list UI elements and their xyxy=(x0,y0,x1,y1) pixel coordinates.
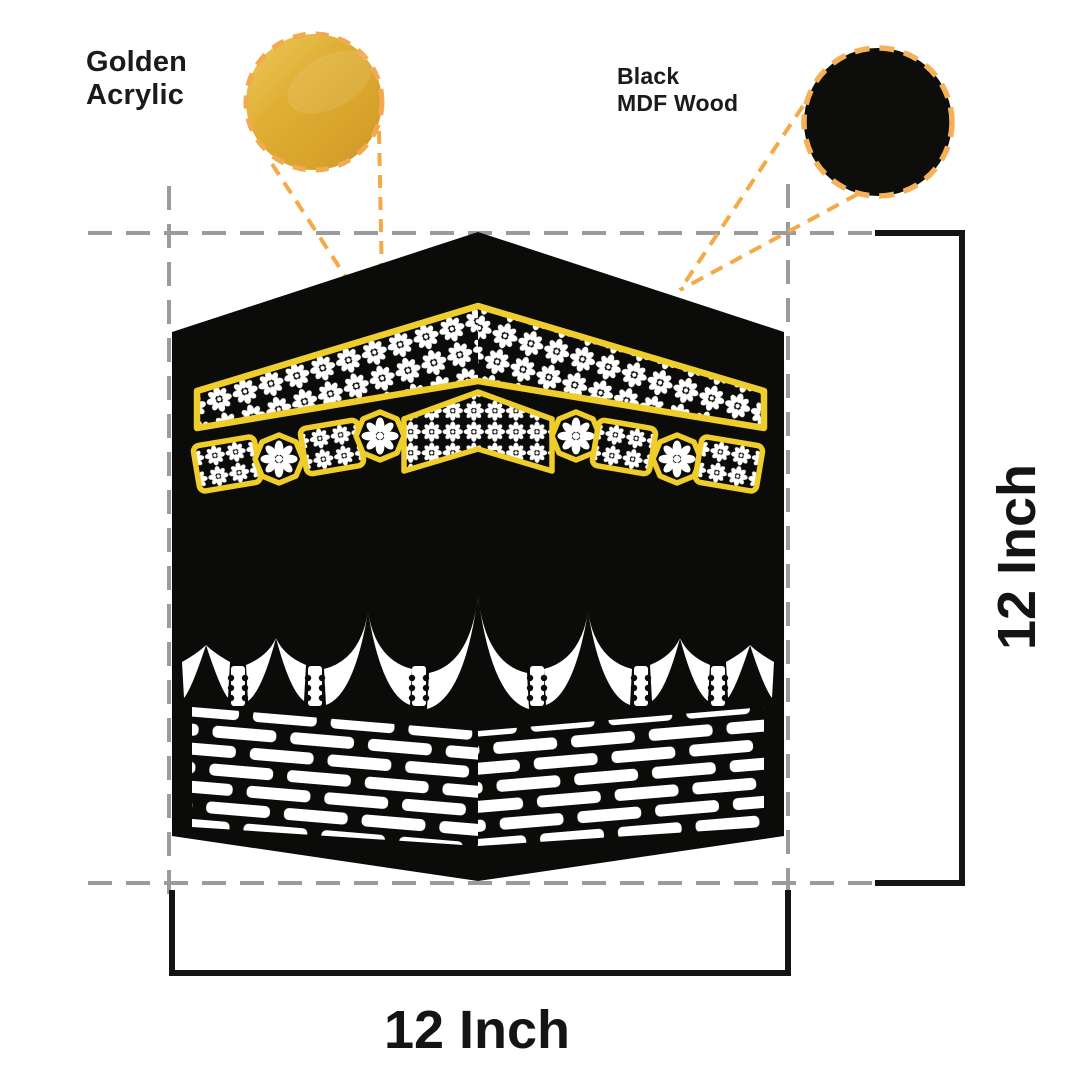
product-dimension-diagram: Golden Acrylic Black MDF Wood 12 Inch 12… xyxy=(0,0,1080,1080)
diagram-canvas xyxy=(0,0,1080,1080)
pointer-black-2 xyxy=(680,194,858,290)
width-dimension-bracket xyxy=(172,890,788,973)
black-mdf-line1: Black xyxy=(617,63,738,90)
band-panel xyxy=(193,436,262,492)
height-dimension-bracket xyxy=(875,233,962,883)
golden-acrylic-line2: Acrylic xyxy=(86,79,187,112)
black-mdf-line2: MDF Wood xyxy=(617,90,738,117)
band-panel xyxy=(695,436,764,492)
height-dimension-label: 12 Inch xyxy=(987,407,1047,707)
golden-acrylic-line1: Golden xyxy=(86,46,187,79)
band-rosette xyxy=(356,412,404,460)
black-mdf-label: Black MDF Wood xyxy=(617,63,738,117)
band-panel xyxy=(592,419,657,474)
width-dimension-label: 12 Inch xyxy=(277,998,677,1062)
band-panel xyxy=(300,419,365,474)
golden-acrylic-label: Golden Acrylic xyxy=(86,46,187,112)
band-rosette xyxy=(255,435,303,483)
kaaba-artwork xyxy=(172,232,784,881)
pointer-black-1 xyxy=(680,106,803,290)
